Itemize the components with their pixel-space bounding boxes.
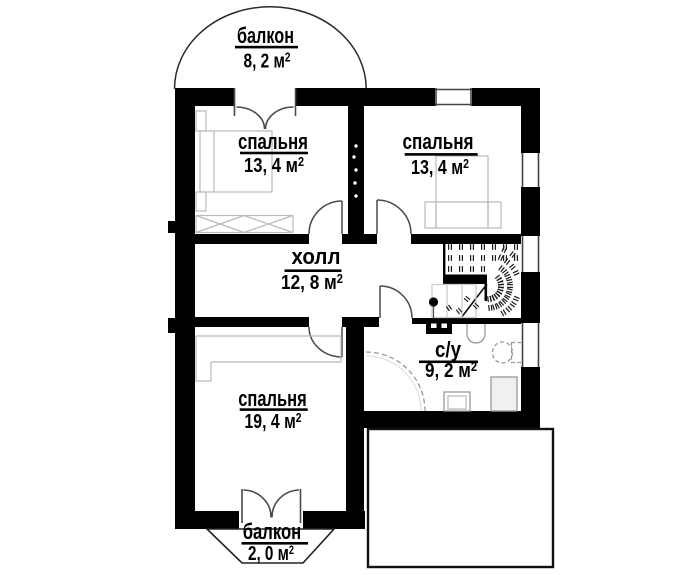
svg-text:8, 2 м2: 8, 2 м2 xyxy=(244,50,291,73)
svg-text:9, 2 м2: 9, 2 м2 xyxy=(425,359,477,382)
svg-text:с/у: с/у xyxy=(435,337,462,362)
svg-text:спальня: спальня xyxy=(238,386,307,411)
svg-text:13, 4 м2: 13, 4 м2 xyxy=(411,156,469,179)
svg-text:спальня: спальня xyxy=(238,129,308,154)
svg-text:балкон: балкон xyxy=(243,519,302,544)
svg-text:холл: холл xyxy=(292,244,341,269)
svg-text:балкон: балкон xyxy=(237,23,294,48)
svg-text:13, 4 м2: 13, 4 м2 xyxy=(244,154,304,177)
svg-text:спальня: спальня xyxy=(403,129,474,154)
svg-text:2, 0 м2: 2, 0 м2 xyxy=(248,543,294,565)
svg-text:12, 8 м2: 12, 8 м2 xyxy=(281,271,343,294)
svg-text:19, 4 м2: 19, 4 м2 xyxy=(245,410,302,433)
